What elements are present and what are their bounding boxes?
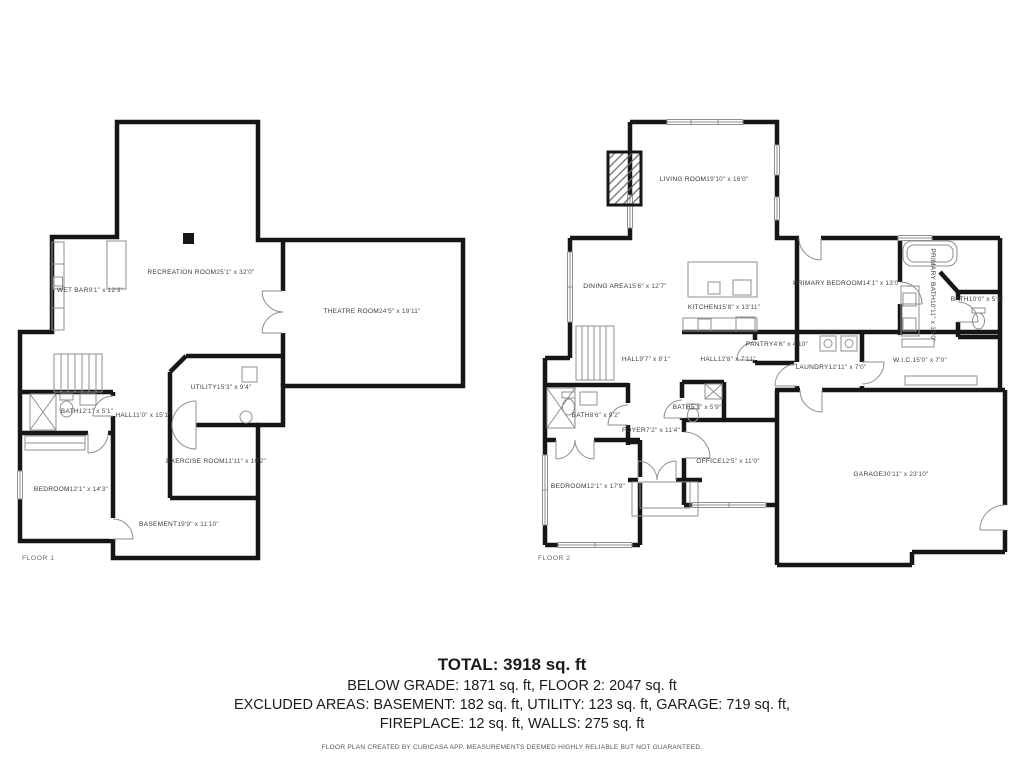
floorplan-canvas [0, 0, 1024, 768]
room-label-primary-bath: PRIMARY BATH10'11" x 13'0" [927, 248, 937, 341]
floor2-tag: FLOOR 2 [538, 555, 571, 562]
room-label-recreation: RECREATION ROOM25'1" x 32'0" [147, 268, 254, 278]
room-label-bath3: BATH5'1" x 5'9" [673, 403, 722, 413]
room-label-foyer: FOYER7'2" x 11'4" [622, 426, 680, 436]
room-label-bedroom2: BEDROOM12'1" x 17'9" [551, 482, 625, 492]
room-label-bath-f1: BATH12'1" x 5'1" [61, 407, 114, 417]
summary-excluded-areas: EXCLUDED AREAS: BASEMENT: 182 sq. ft, UT… [0, 697, 1024, 713]
floor2-fireplace [608, 152, 641, 205]
floorplan-page: WET BAR9'1" x 12'3" RECREATION ROOM25'1"… [0, 0, 1024, 768]
area-summary: TOTAL: 3918 sq. ft BELOW GRADE: 1871 sq.… [0, 655, 1024, 751]
room-label-utility: UTILITY15'3" x 9'4" [191, 383, 252, 393]
room-label-living: LIVING ROOM19'10" x 16'0" [660, 175, 749, 185]
room-label-bedroom-f1: BEDROOM12'1" x 14'3" [34, 485, 108, 495]
room-label-exercise: EXERCISE ROOM11'11" x 10'2" [166, 457, 266, 467]
summary-below-grade: BELOW GRADE: 1871 sq. ft, FLOOR 2: 2047 … [0, 678, 1024, 694]
summary-total: TOTAL: 3918 sq. ft [0, 655, 1024, 675]
room-label-bath-small: BATH10'0" x 5'1" [951, 295, 1004, 305]
room-label-hall-a: HALL9'7" x 8'1" [622, 355, 670, 365]
room-label-basement: BASEMENT19'9" x 11'10" [139, 520, 219, 530]
room-label-dining: DINING AREA15'6" x 12'7" [583, 282, 667, 292]
room-label-primary-bedroom: PRIMARY BEDROOM14'1" x 13'0" [793, 279, 901, 289]
room-label-theatre: THEATRE ROOM24'5" x 19'11" [323, 307, 420, 317]
room-label-bath2: BATH8'6" x 9'2" [572, 411, 621, 421]
disclaimer: FLOOR PLAN CREATED BY CUBICASA APP. MEAS… [0, 744, 1024, 751]
room-label-wet-bar: WET BAR9'1" x 12'3" [57, 286, 123, 296]
room-label-kitchen: KITCHEN15'8" x 13'11" [688, 303, 760, 313]
room-label-hall-f1: HALL11'0" x 15'1" [115, 411, 170, 421]
floor1-tag: FLOOR 1 [22, 555, 55, 562]
room-label-hall-b: HALL12'8" x 7'11" [700, 355, 755, 365]
room-label-pantry: PANTRY4'6" x 4'10" [746, 340, 808, 350]
room-label-garage: GARAGE30'11" x 23'10" [853, 470, 928, 480]
room-label-wic: W.I.C.15'0" x 7'0" [893, 356, 947, 366]
summary-fireplace-walls: FIREPLACE: 12 sq. ft, WALLS: 275 sq. ft [0, 716, 1024, 732]
floor1-fireplace [183, 233, 194, 244]
room-label-laundry: LAUNDRY12'11" x 7'0" [796, 363, 867, 373]
room-label-office: OFFICE12'5" x 11'0" [696, 457, 760, 467]
